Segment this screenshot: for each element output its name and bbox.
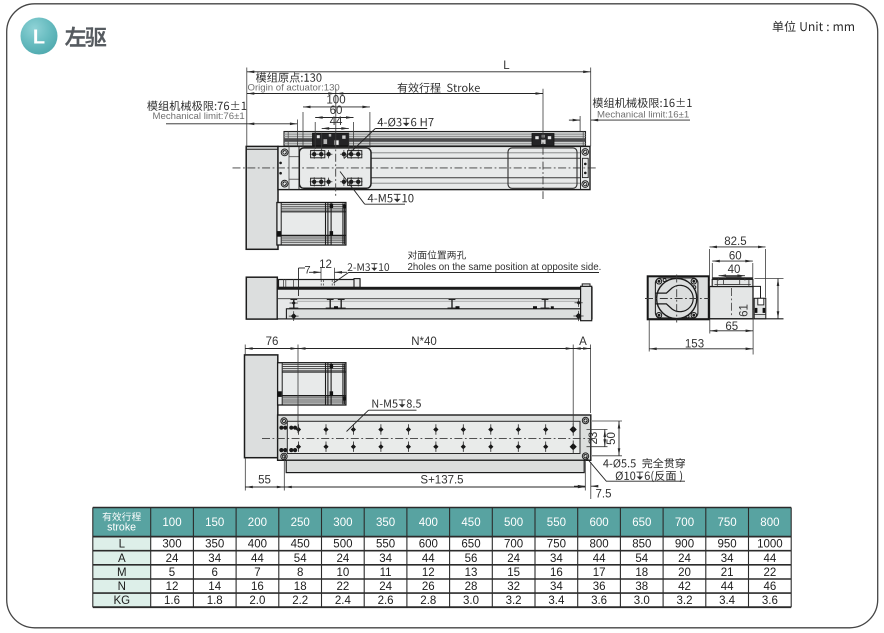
svg-text:16: 16 (550, 567, 563, 579)
svg-text:12: 12 (166, 581, 179, 593)
svg-text:44: 44 (422, 553, 435, 565)
svg-text:550: 550 (376, 539, 395, 551)
svg-text:450: 450 (291, 539, 310, 551)
svg-text:44: 44 (721, 581, 734, 593)
svg-text:26: 26 (422, 581, 435, 593)
svg-text:54: 54 (635, 553, 648, 565)
svg-text:450: 450 (461, 517, 480, 529)
svg-text:42: 42 (678, 581, 691, 593)
svg-text:76: 76 (266, 336, 279, 348)
svg-text:10: 10 (337, 567, 350, 579)
svg-text:60: 60 (729, 250, 742, 262)
svg-text:1.8: 1.8 (207, 595, 223, 607)
svg-text:65: 65 (725, 321, 738, 333)
svg-text:28: 28 (465, 581, 478, 593)
svg-text:34: 34 (379, 553, 392, 565)
svg-text:650: 650 (632, 517, 651, 529)
svg-text:7.5: 7.5 (596, 489, 612, 501)
svg-text:12: 12 (319, 259, 332, 271)
svg-text:32: 32 (507, 581, 520, 593)
svg-text:16: 16 (251, 581, 264, 593)
svg-text:2.8: 2.8 (420, 595, 436, 607)
svg-text:18: 18 (635, 567, 648, 579)
svg-text:14: 14 (208, 581, 221, 593)
svg-text:700: 700 (504, 539, 523, 551)
svg-text:550: 550 (547, 517, 566, 529)
svg-text:82.5: 82.5 (724, 236, 746, 248)
svg-text:24: 24 (379, 581, 392, 593)
svg-text:55: 55 (258, 474, 271, 486)
svg-text:34: 34 (208, 553, 221, 565)
svg-text:44: 44 (764, 553, 777, 565)
svg-text:24: 24 (166, 553, 179, 565)
svg-text:N: N (118, 581, 126, 593)
svg-text:650: 650 (461, 539, 480, 551)
svg-text:3.0: 3.0 (634, 595, 650, 607)
svg-text:24: 24 (507, 553, 520, 565)
svg-text:11: 11 (380, 567, 392, 579)
svg-text:600: 600 (590, 517, 609, 529)
svg-text:800: 800 (590, 539, 609, 551)
svg-text:L: L (33, 27, 45, 49)
svg-text:24: 24 (337, 553, 350, 565)
svg-text:950: 950 (718, 539, 737, 551)
svg-text:13: 13 (465, 567, 478, 579)
svg-text:22: 22 (337, 581, 350, 593)
svg-text:34: 34 (550, 581, 563, 593)
svg-text:2.2: 2.2 (292, 595, 308, 607)
svg-text:500: 500 (333, 539, 352, 551)
svg-text:N*40: N*40 (411, 336, 437, 348)
svg-text:8: 8 (297, 567, 303, 579)
svg-text:54: 54 (294, 553, 307, 565)
svg-text:400: 400 (248, 539, 267, 551)
svg-text:400: 400 (419, 517, 438, 529)
svg-text:KG: KG (113, 595, 130, 607)
svg-text:34: 34 (550, 553, 563, 565)
svg-text:A: A (579, 336, 587, 348)
svg-text:Mechanical limit:76±1: Mechanical limit:76±1 (153, 111, 245, 122)
svg-text:2holes on the same position at: 2holes on the same position at opposite … (408, 262, 602, 273)
svg-text:800: 800 (760, 517, 779, 529)
svg-text:21: 21 (721, 567, 734, 579)
svg-text:600: 600 (419, 539, 438, 551)
svg-text:300: 300 (333, 517, 352, 529)
svg-text:3.0: 3.0 (463, 595, 479, 607)
svg-text:15: 15 (507, 567, 520, 579)
svg-text:24: 24 (678, 553, 691, 565)
svg-text:3.4: 3.4 (719, 595, 736, 607)
svg-text:3.2: 3.2 (677, 595, 693, 607)
svg-text:3.6: 3.6 (591, 595, 607, 607)
svg-text:2.4: 2.4 (335, 595, 352, 607)
svg-text:20: 20 (678, 567, 691, 579)
svg-text:61: 61 (739, 304, 751, 317)
svg-text:2.0: 2.0 (249, 595, 265, 607)
svg-text:3.4: 3.4 (548, 595, 565, 607)
svg-text:46: 46 (764, 581, 777, 593)
svg-text:44: 44 (251, 553, 264, 565)
svg-text:153: 153 (685, 338, 704, 350)
svg-text:12: 12 (422, 567, 435, 579)
svg-text:7: 7 (254, 567, 260, 579)
svg-text:1.6: 1.6 (164, 595, 180, 607)
svg-text:150: 150 (205, 517, 224, 529)
svg-text:350: 350 (376, 517, 395, 529)
svg-text:23: 23 (588, 432, 600, 445)
svg-text:700: 700 (675, 517, 694, 529)
svg-text:750: 750 (718, 517, 737, 529)
svg-text:56: 56 (465, 553, 478, 565)
svg-text:5: 5 (169, 567, 175, 579)
svg-text:38: 38 (635, 581, 648, 593)
svg-text:Mechanical limit:16±1: Mechanical limit:16±1 (597, 110, 689, 121)
svg-text:850: 850 (632, 539, 651, 551)
svg-text:44: 44 (593, 553, 606, 565)
svg-text:300: 300 (162, 539, 181, 551)
svg-text:34: 34 (721, 553, 734, 565)
svg-text:44: 44 (330, 116, 343, 128)
svg-text:50: 50 (606, 432, 618, 445)
svg-text:L: L (503, 60, 510, 72)
svg-text:S+137.5: S+137.5 (420, 474, 463, 486)
svg-text:40: 40 (728, 264, 741, 276)
svg-text:350: 350 (205, 539, 224, 551)
svg-text:22: 22 (764, 567, 777, 579)
svg-text:750: 750 (547, 539, 566, 551)
svg-text:500: 500 (504, 517, 523, 529)
svg-text:17: 17 (593, 567, 606, 579)
svg-text:18: 18 (294, 581, 307, 593)
svg-text:200: 200 (248, 517, 267, 529)
svg-text:100: 100 (162, 517, 181, 529)
svg-text:3.6: 3.6 (762, 595, 778, 607)
svg-text:36: 36 (593, 581, 606, 593)
svg-text:1000: 1000 (757, 539, 783, 551)
svg-text:A: A (118, 553, 126, 565)
svg-text:stroke: stroke (107, 522, 136, 534)
svg-text:900: 900 (675, 539, 694, 551)
svg-text:250: 250 (291, 517, 310, 529)
svg-text:2.6: 2.6 (378, 595, 394, 607)
svg-text:L: L (119, 539, 126, 551)
svg-text:M: M (117, 567, 127, 579)
svg-text:3.2: 3.2 (506, 595, 522, 607)
svg-text:Origin of actuator:130: Origin of actuator:130 (248, 83, 340, 94)
svg-text:6: 6 (211, 567, 217, 579)
svg-text:7: 7 (304, 265, 310, 277)
